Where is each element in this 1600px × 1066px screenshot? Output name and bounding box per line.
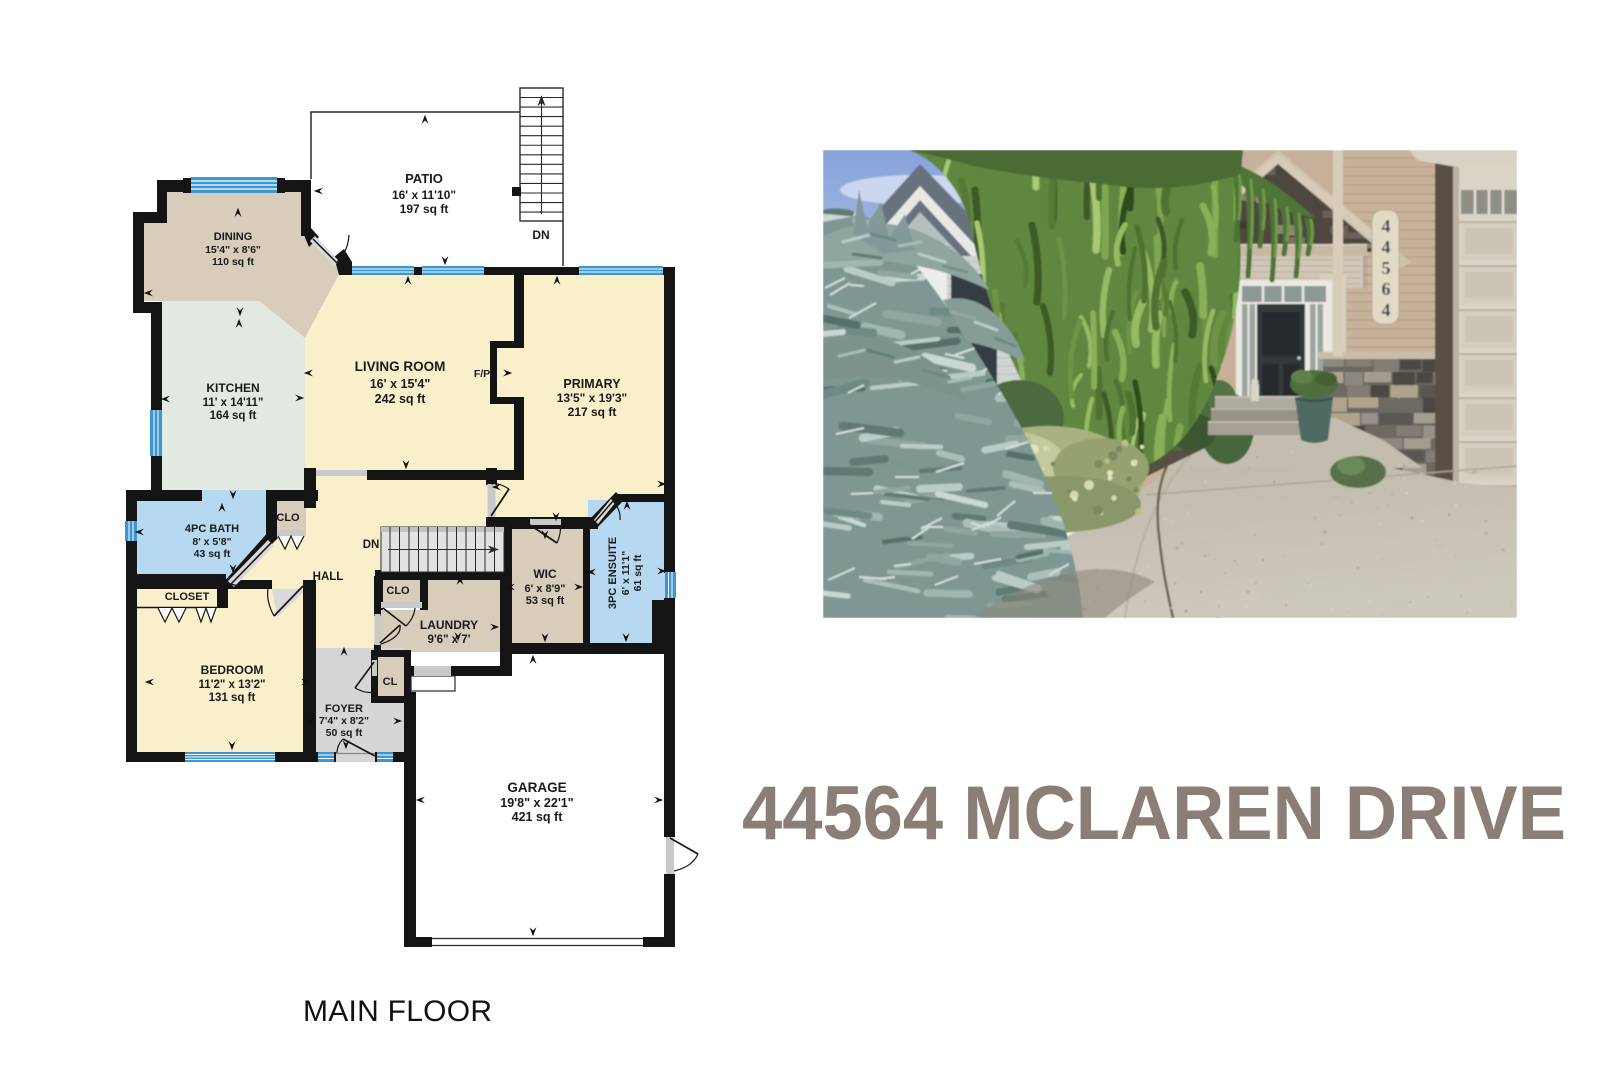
svg-text:61 sq ft: 61 sq ft <box>632 554 644 591</box>
svg-text:242 sq ft: 242 sq ft <box>375 392 427 406</box>
svg-text:11' x 14'11": 11' x 14'11" <box>203 397 264 409</box>
svg-text:PATIO: PATIO <box>405 171 443 186</box>
svg-text:131 sq ft: 131 sq ft <box>209 692 256 704</box>
svg-text:16' x 11'10": 16' x 11'10" <box>392 188 456 202</box>
svg-text:GARAGE: GARAGE <box>507 780 566 795</box>
svg-text:43 sq ft: 43 sq ft <box>194 548 231 560</box>
svg-text:WIC: WIC <box>533 567 557 581</box>
svg-text:LAUNDRY: LAUNDRY <box>420 618 478 632</box>
svg-text:16' x 15'4": 16' x 15'4" <box>370 377 431 391</box>
svg-text:15'4" x 8'6": 15'4" x 8'6" <box>205 244 261 256</box>
svg-text:4: 4 <box>1382 300 1391 320</box>
svg-text:110 sq ft: 110 sq ft <box>212 256 255 268</box>
svg-text:6' x 8'9": 6' x 8'9" <box>524 583 565 595</box>
svg-text:DN: DN <box>363 539 380 551</box>
svg-text:LIVING ROOM: LIVING ROOM <box>355 359 446 374</box>
svg-text:PRIMARY: PRIMARY <box>563 377 621 391</box>
svg-text:50 sq ft: 50 sq ft <box>326 727 363 739</box>
svg-text:F/P: F/P <box>474 368 490 380</box>
svg-text:164 sq ft: 164 sq ft <box>210 410 257 422</box>
svg-text:DINING: DINING <box>214 231 253 243</box>
svg-text:6: 6 <box>1382 279 1391 299</box>
svg-text:4PC BATH: 4PC BATH <box>185 523 239 535</box>
svg-text:KITCHEN: KITCHEN <box>206 381 259 395</box>
svg-text:197 sq ft: 197 sq ft <box>400 202 449 216</box>
svg-text:CLOSET: CLOSET <box>165 591 210 603</box>
svg-text:CLO: CLO <box>386 585 410 597</box>
svg-text:FOYER: FOYER <box>325 703 363 715</box>
svg-text:11'2" x 13'2": 11'2" x 13'2" <box>199 679 266 691</box>
svg-text:6' x 11'1": 6' x 11'1" <box>620 551 632 595</box>
svg-text:13'5" x 19'3": 13'5" x 19'3" <box>557 391 627 405</box>
svg-text:4: 4 <box>1382 237 1391 257</box>
svg-text:BEDROOM: BEDROOM <box>201 663 264 677</box>
svg-text:421 sq ft: 421 sq ft <box>512 810 564 824</box>
svg-text:MAIN FLOOR: MAIN FLOOR <box>303 995 492 1028</box>
svg-text:7'4" x 8'2": 7'4" x 8'2" <box>319 715 369 727</box>
svg-text:217 sq ft: 217 sq ft <box>568 405 617 419</box>
svg-text:3PC ENSUITE: 3PC ENSUITE <box>607 537 619 609</box>
svg-text:DN: DN <box>532 228 549 242</box>
svg-text:8' x 5'8": 8' x 5'8" <box>192 536 231 548</box>
svg-text:53 sq ft: 53 sq ft <box>526 595 565 607</box>
svg-text:19'8" x 22'1": 19'8" x 22'1" <box>500 796 573 810</box>
svg-text:4: 4 <box>1382 216 1391 236</box>
svg-text:5: 5 <box>1382 258 1391 278</box>
svg-text:CLO: CLO <box>276 512 300 524</box>
svg-text:CL: CL <box>383 676 398 688</box>
svg-text:9'6" x 7': 9'6" x 7' <box>428 634 471 646</box>
svg-text:44564 MCLAREN DRIVE: 44564 MCLAREN DRIVE <box>742 771 1566 856</box>
svg-text:HALL: HALL <box>313 571 344 583</box>
